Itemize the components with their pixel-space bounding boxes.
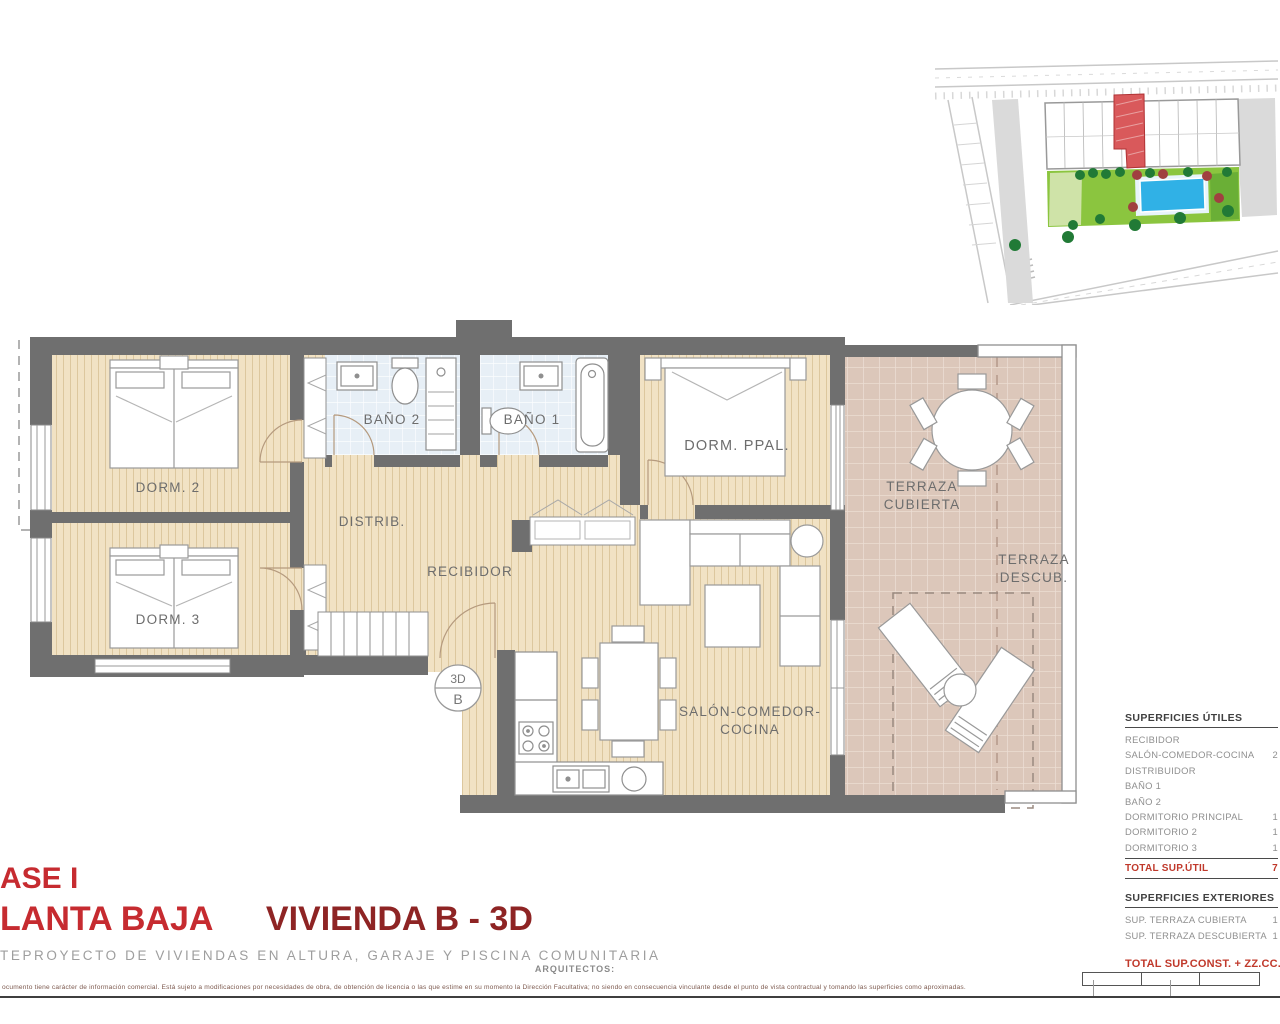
surface-row-value: 1: [1272, 928, 1278, 943]
table-row: SALÓN-COMEDOR-COCINA2: [1125, 747, 1278, 762]
plan-sheet: 3D B DORM. 2 DORM. 3 BAÑO 2 BAÑO 1 DORM.…: [0, 0, 1280, 1024]
title-line: LANTA BAJA VIVIENDA B - 3D: [0, 900, 533, 939]
unit-title: VIVIENDA B - 3D: [266, 900, 533, 939]
room-label-terraza-descub-line2: DESCUB.: [1000, 570, 1068, 585]
useful-total-row: TOTAL SUP.ÚTIL7: [1125, 858, 1278, 879]
surfaces-useful-title: SUPERFICIES ÚTILES: [1125, 712, 1278, 728]
table-row: BAÑO 2: [1125, 794, 1278, 809]
useful-total-label: TOTAL SUP.ÚTIL: [1125, 859, 1208, 878]
sheet-border-line: [0, 996, 1280, 998]
surface-row-label: SUP. TERRAZA CUBIERTA: [1125, 912, 1247, 927]
room-label-bano-2: BAÑO 2: [364, 412, 421, 427]
table-row: RECIBIDOR: [1125, 732, 1278, 747]
surface-row-label: BAÑO 2: [1125, 794, 1161, 809]
table-row: BAÑO 1: [1125, 778, 1278, 793]
scale-bar: [1082, 972, 1260, 986]
surface-row-value: 1: [1272, 840, 1278, 855]
table-row: DORMITORIO 21: [1125, 824, 1278, 839]
phase-title: ASE I: [0, 862, 78, 896]
surface-row-value: 1: [1272, 824, 1278, 839]
table-row: SUP. TERRAZA CUBIERTA1: [1125, 912, 1278, 927]
surface-row-value: 2: [1272, 747, 1278, 762]
titleblock-divider: [1093, 980, 1094, 996]
room-label-terraza-cubierta-line1: TERRAZA: [886, 479, 957, 494]
table-row: DORMITORIO PRINCIPAL1: [1125, 809, 1278, 824]
room-label-salon-line2: COCINA: [720, 722, 780, 737]
disclaimer-text: ocumento tiene carácter de información c…: [2, 984, 1092, 991]
surface-row-label: SUP. TERRAZA DESCUBIERTA: [1125, 928, 1267, 943]
scale-divider: [1141, 973, 1142, 985]
table-row: DISTRIBUIDOR: [1125, 763, 1278, 778]
surface-row-label: SALÓN-COMEDOR-COCINA: [1125, 747, 1254, 762]
surface-row-label: DORMITORIO PRINCIPAL: [1125, 809, 1243, 824]
room-label-distrib: DISTRIB.: [339, 514, 406, 529]
surface-row-label: DORMITORIO 3: [1125, 840, 1197, 855]
room-label-terraza-descub-line1: TERRAZA: [998, 552, 1069, 567]
room-label-bano-1: BAÑO 1: [504, 412, 561, 427]
surface-row-label: BAÑO 1: [1125, 778, 1161, 793]
surfaces-exterior-title: SUPERFICIES EXTERIORES: [1125, 892, 1278, 908]
scale-divider: [1199, 973, 1200, 985]
room-label-salon-line1: SALÓN-COMEDOR-: [679, 704, 821, 719]
surfaces-table: SUPERFICIES ÚTILES RECIBIDOR SALÓN-COMED…: [1125, 712, 1278, 970]
surface-row-value: 1: [1272, 809, 1278, 824]
useful-total-value: 7: [1272, 859, 1278, 878]
project-subtitle: TEPROYECTO DE VIVIENDAS EN ALTURA, GARAJ…: [0, 948, 661, 963]
surface-row-label: DORMITORIO 2: [1125, 824, 1197, 839]
marker-top-label: 3D: [450, 672, 466, 686]
grand-total-row: TOTAL SUP.CONST. + ZZ.CC.121,: [1125, 958, 1278, 970]
table-row: DORMITORIO 31: [1125, 840, 1278, 855]
room-label-terraza-cubierta-line2: CUBIERTA: [884, 497, 961, 512]
room-label-recibidor: RECIBIDOR: [427, 564, 513, 579]
marker-bottom-label: B: [453, 691, 462, 707]
room-label-dorm-ppal: DORM. PPAL.: [684, 438, 790, 454]
site-plan-inset: [930, 55, 1280, 305]
room-label-dorm-3: DORM. 3: [136, 612, 201, 627]
grand-total-label: TOTAL SUP.CONST. + ZZ.CC.: [1125, 958, 1280, 970]
table-row: SUP. TERRAZA DESCUBIERTA1: [1125, 928, 1278, 943]
room-label-dorm-2: DORM. 2: [136, 480, 201, 495]
site-building: [1045, 94, 1240, 169]
surface-row-label: RECIBIDOR: [1125, 732, 1180, 747]
surface-row-label: DISTRIBUIDOR: [1125, 763, 1196, 778]
titleblock-divider: [1170, 980, 1171, 996]
floor-title: LANTA BAJA: [0, 900, 213, 939]
plan-marker: 3D B: [435, 665, 481, 711]
surface-row-value: 1: [1272, 912, 1278, 927]
architects-label: ARQUITECTOS:: [440, 964, 710, 974]
